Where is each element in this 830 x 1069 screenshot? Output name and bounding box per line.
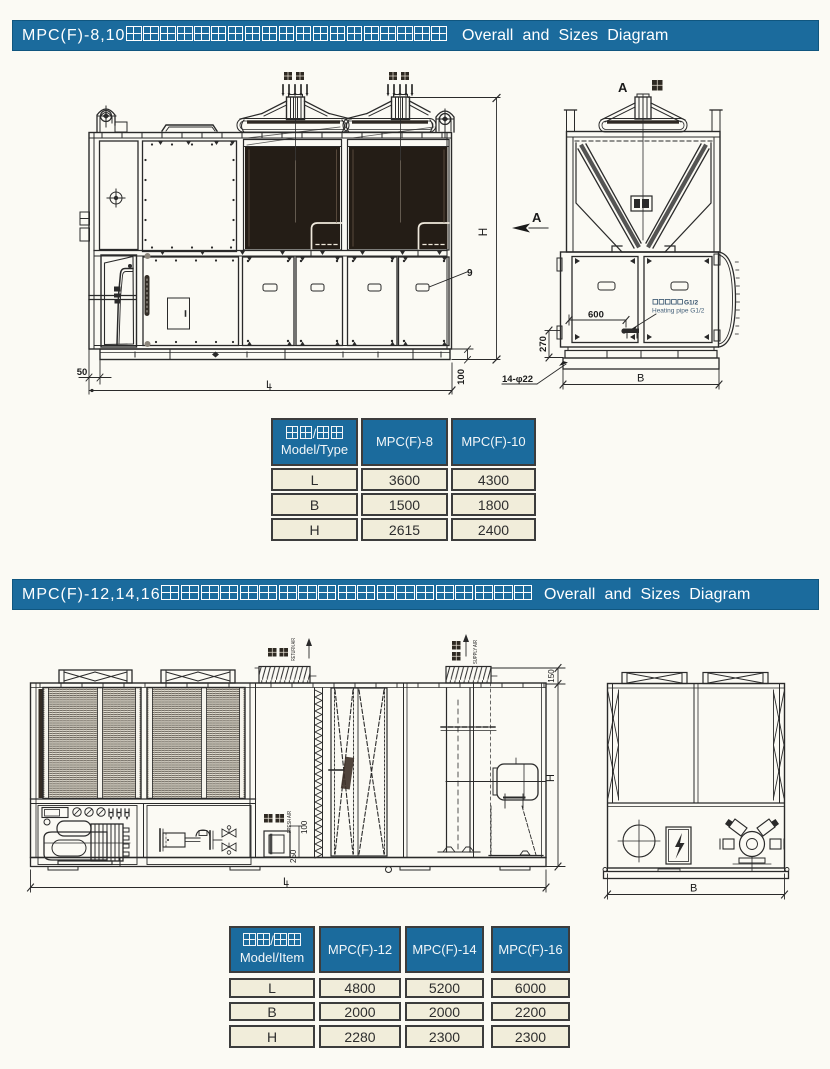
- svg-text:100: 100: [300, 820, 309, 834]
- svg-text:G1/2: G1/2: [684, 300, 698, 307]
- svg-text:L: L: [266, 379, 272, 391]
- svg-text:A: A: [532, 210, 542, 225]
- svg-text:SUPPLY AIR: SUPPLY AIR: [473, 640, 479, 664]
- svg-text:B: B: [637, 373, 644, 385]
- svg-text:9: 9: [467, 268, 473, 279]
- svg-text:L: L: [283, 876, 289, 888]
- svg-text:FRESH AIR: FRESH AIR: [287, 811, 293, 833]
- svg-text:B: B: [690, 883, 697, 895]
- svg-text:H: H: [476, 228, 490, 237]
- svg-text:A: A: [618, 80, 628, 95]
- svg-text:100: 100: [456, 369, 467, 385]
- svg-text:270: 270: [538, 336, 549, 352]
- svg-text:250: 250: [289, 849, 298, 863]
- svg-text:600: 600: [588, 310, 604, 321]
- svg-text:150: 150: [547, 669, 556, 683]
- svg-text:H: H: [545, 774, 557, 782]
- svg-text:50: 50: [77, 367, 88, 378]
- svg-text:Heating pipe G1/2: Heating pipe G1/2: [652, 308, 705, 315]
- svg-text:14-φ22: 14-φ22: [502, 374, 533, 385]
- svg-text:RETURN AIR: RETURN AIR: [291, 638, 297, 661]
